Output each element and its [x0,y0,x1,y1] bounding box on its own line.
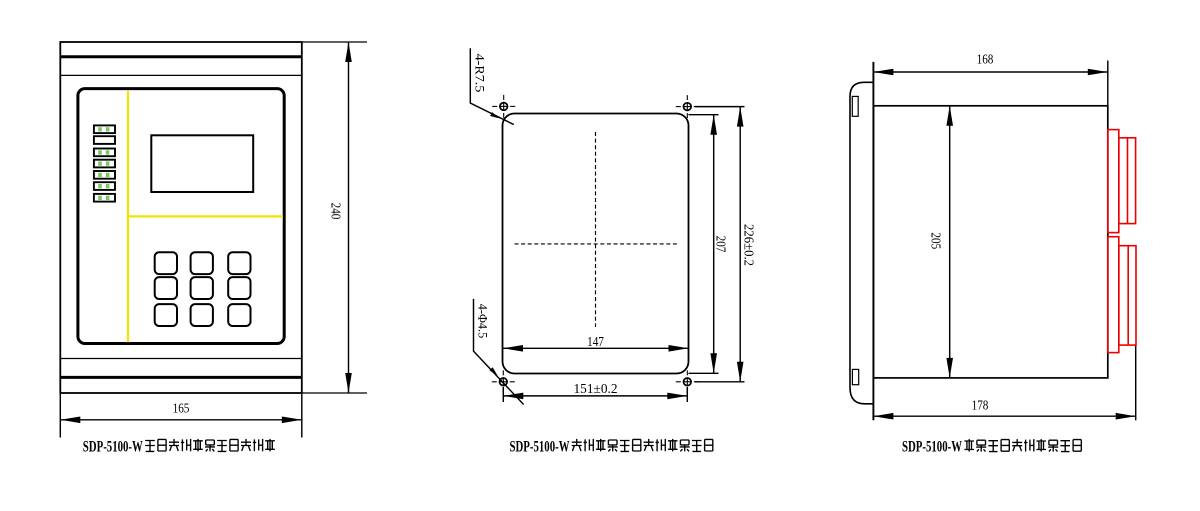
svg-text:SDP-5100-W: SDP-5100-W [510,438,570,455]
svg-text:178: 178 [972,399,989,414]
svg-text:207: 207 [713,236,728,253]
svg-text:168: 168 [977,53,994,68]
svg-text:165: 165 [173,401,190,416]
svg-text:151±0.2: 151±0.2 [574,382,618,397]
svg-text:SDP-5100-W: SDP-5100-W [902,439,962,456]
svg-text:147: 147 [587,335,604,350]
svg-text:205: 205 [928,232,943,249]
svg-text:4-Φ4.5: 4-Φ4.5 [476,304,491,338]
svg-text:226±0.2: 226±0.2 [741,224,756,266]
svg-text:4-R7.5: 4-R7.5 [473,54,488,93]
svg-text:SDP-5100-W: SDP-5100-W [83,438,143,455]
svg-text:240: 240 [328,203,343,220]
